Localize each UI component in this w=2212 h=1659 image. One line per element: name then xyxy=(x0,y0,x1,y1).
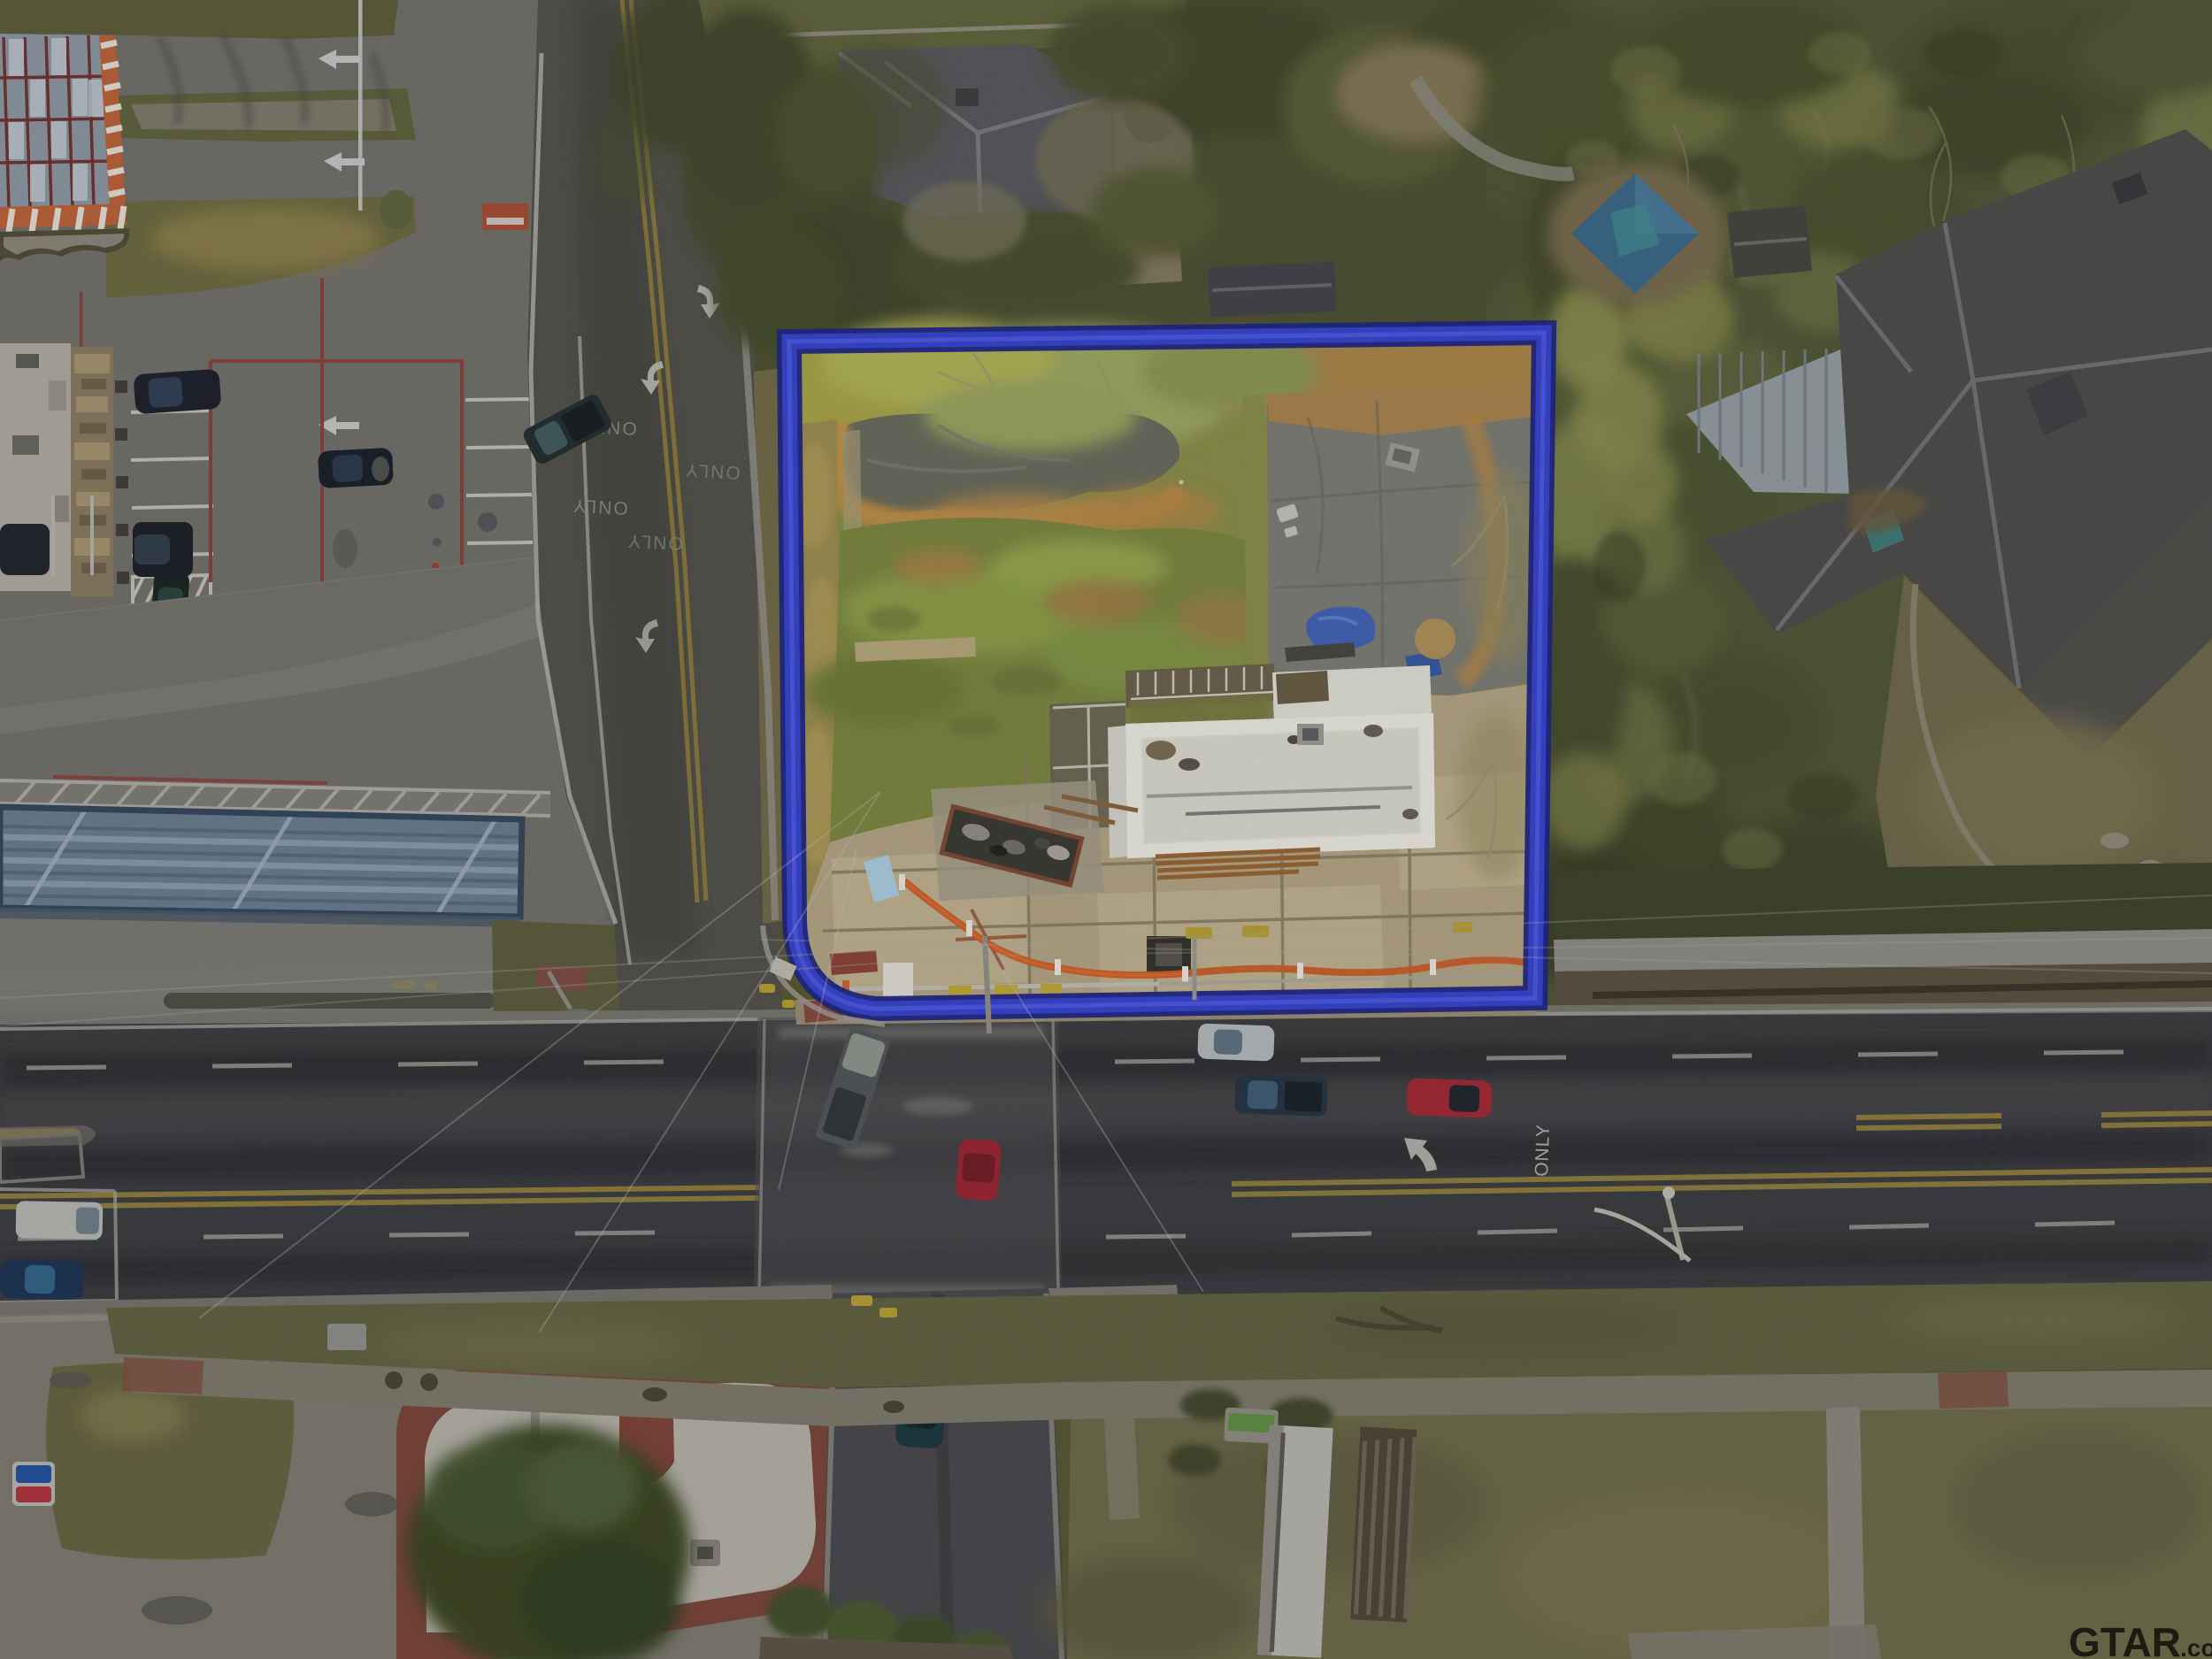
svg-text:GTAR: GTAR xyxy=(2069,1619,2181,1659)
svg-text:.com: .com xyxy=(2180,1634,2212,1659)
